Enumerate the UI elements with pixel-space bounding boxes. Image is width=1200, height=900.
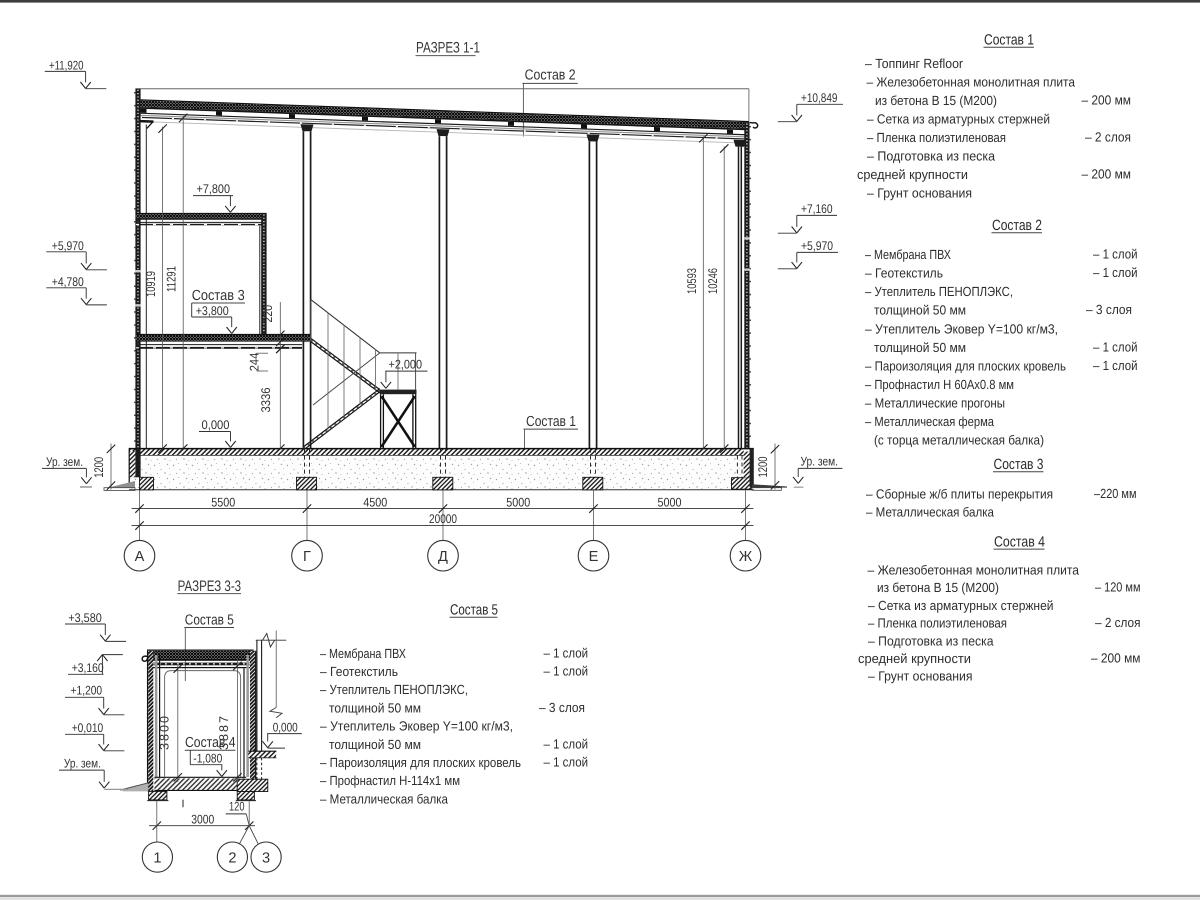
svg-text:– Геотекстиль: – Геотекстиль [320, 664, 398, 679]
svg-text:– 1 слой: – 1 слой [544, 664, 589, 679]
svg-text:– Металлические прогоны: – Металлические прогоны [865, 395, 1005, 410]
svg-text:– Металлическая ферма: – Металлическая ферма [865, 414, 995, 429]
svg-text:– Пленка полиэтиленовая: – Пленка полиэтиленовая [868, 616, 1007, 631]
svg-text:10919: 10919 [144, 271, 158, 297]
svg-text:Состав 3: Состав 3 [192, 288, 245, 304]
svg-text:+4,780: +4,780 [52, 275, 84, 289]
svg-text:10593: 10593 [685, 268, 699, 294]
svg-text:–220 мм: –220 мм [1094, 486, 1137, 501]
svg-text:– 3 слоя: – 3 слоя [539, 700, 585, 715]
svg-text:– 1 слой: – 1 слой [1093, 358, 1138, 373]
svg-text:– Утеплитель Эковер Y=100 кг/м: – Утеплитель Эковер Y=100 кг/м3, [865, 321, 1058, 336]
svg-text:– Сборные ж/б плиты перекрытия: – Сборные ж/б плиты перекрытия [866, 486, 1053, 501]
svg-text:– 200 мм: – 200 мм [1082, 166, 1132, 181]
svg-text:Ж: Ж [739, 549, 753, 565]
svg-text:– 2 слоя: – 2 слоя [1085, 129, 1131, 144]
svg-text:из бетона В 15 (М200): из бетона В 15 (М200) [875, 93, 997, 108]
svg-text:3336: 3336 [259, 388, 273, 413]
svg-text:толщиной 50 мм: толщиной 50 мм [874, 303, 966, 318]
svg-text:+7,160: +7,160 [801, 202, 833, 216]
svg-text:+2,000: +2,000 [389, 358, 423, 372]
svg-text:из бетона В 15 (М200): из бетона В 15 (М200) [877, 580, 999, 595]
svg-text:Состав 4: Состав 4 [994, 534, 1045, 550]
svg-text:Состав 3: Состав 3 [994, 457, 1044, 473]
svg-text:20000: 20000 [429, 512, 457, 526]
svg-text:10246: 10246 [706, 268, 720, 294]
svg-text:5000: 5000 [658, 496, 682, 510]
svg-text:5500: 5500 [211, 496, 235, 510]
svg-text:Состав 2: Состав 2 [992, 218, 1042, 234]
svg-text:3: 3 [262, 850, 270, 866]
svg-text:– Железобетонная монолитная п: – Железобетонная монолитная плита [868, 563, 1080, 578]
svg-text:– 1 слой: – 1 слой [544, 645, 589, 660]
svg-text:+3,580: +3,580 [68, 611, 102, 625]
svg-text:средней крупности: средней крупности [857, 167, 968, 182]
svg-text:– 3 слоя: – 3 слоя [1086, 302, 1132, 317]
svg-text:– Металлическая балка: – Металлическая балка [866, 505, 995, 520]
svg-text:5000: 5000 [506, 496, 530, 510]
svg-text:1200: 1200 [92, 457, 106, 478]
svg-text:– Пароизоляция для плоских кро: – Пароизоляция для плоских кровель [320, 755, 521, 770]
svg-text:+0,010: +0,010 [72, 721, 104, 735]
svg-text:– Подготовка из песка: – Подготовка из песка [868, 633, 994, 648]
svg-text:Состав 2: Состав 2 [525, 68, 576, 84]
svg-text:– Сетка из арматурных стержней: – Сетка из арматурных стержней [867, 111, 1050, 126]
svg-text:– 200 мм: – 200 мм [1091, 651, 1141, 666]
svg-text:+3,800: +3,800 [196, 304, 229, 318]
svg-text:– 200 мм: – 200 мм [1082, 92, 1132, 107]
svg-text:– 1 слой: – 1 слой [1093, 265, 1138, 280]
svg-text:4500: 4500 [363, 496, 387, 510]
svg-text:– Сетка из арматурных стержней: – Сетка из арматурных стержней [868, 598, 1054, 613]
svg-text:2: 2 [228, 850, 236, 866]
svg-text:+1,200: +1,200 [71, 683, 103, 697]
svg-text:– Профнастил Н-114х1 мм: – Профнастил Н-114х1 мм [320, 773, 460, 788]
svg-text:-1,080: -1,080 [193, 751, 222, 765]
svg-text:– 2 слоя: – 2 слоя [1095, 615, 1141, 630]
svg-text:– 1 слой: – 1 слой [1093, 339, 1138, 354]
svg-text:А: А [135, 549, 145, 565]
svg-text:– Топпинг Refloor: – Топпинг Refloor [865, 56, 964, 71]
svg-text:РАЗРЕЗ 3-3: РАЗРЕЗ 3-3 [178, 578, 242, 595]
svg-text:средней крупности: средней крупности [858, 651, 971, 666]
svg-text:– Мембрана ПВХ: – Мембрана ПВХ [320, 646, 406, 661]
svg-text:– Профнастил Н 60Ах0.8 мм: – Профнастил Н 60Ах0.8 мм [865, 377, 1014, 392]
svg-text:0,000: 0,000 [273, 720, 298, 734]
svg-text:Ур. зем.: Ур. зем. [46, 455, 83, 469]
svg-text:– Утеплитель Эковер Y=100 кг/м: – Утеплитель Эковер Y=100 кг/м3, [320, 719, 513, 734]
svg-text:Е: Е [589, 549, 599, 565]
svg-text:– Геотекстиль: – Геотекстиль [865, 266, 943, 281]
svg-text:Состав 1: Состав 1 [526, 414, 576, 430]
svg-text:– Пароизоляция для плоских кро: – Пароизоляция для плоских кровель [865, 358, 1066, 373]
svg-text:(с торца металлическая балка): (с торца металлическая балка) [874, 432, 1044, 447]
svg-text:Г: Г [303, 549, 311, 565]
svg-text:РАЗРЕЗ 1-1: РАЗРЕЗ 1-1 [416, 39, 480, 56]
svg-text:Д: Д [438, 549, 448, 565]
svg-text:120: 120 [229, 799, 245, 813]
svg-text:3800: 3800 [157, 716, 171, 750]
svg-text:– Грунт основания: – Грунт основания [867, 185, 972, 200]
svg-text:– Утеплитель ПЕНОПЛЭКС,: – Утеплитель ПЕНОПЛЭКС, [865, 284, 1013, 299]
svg-text:+7,800: +7,800 [197, 182, 231, 196]
svg-text:– Пленка полиэтиленовая: – Пленка полиэтиленовая [867, 130, 1006, 145]
svg-text:+11,920: +11,920 [49, 59, 84, 73]
svg-text:– Железобетонная монолитная п: – Железобетонная монолитная плита [867, 74, 1076, 89]
svg-text:0,000: 0,000 [202, 418, 230, 432]
svg-text:244: 244 [247, 353, 261, 372]
svg-text:+5,970: +5,970 [52, 239, 84, 253]
svg-text:Ур. зем.: Ур. зем. [801, 454, 839, 468]
svg-text:– Металлическая балка: – Металлическая балка [320, 791, 449, 806]
svg-text:– Мембрана ПВХ: – Мембрана ПВХ [865, 247, 951, 262]
svg-text:Состав 5: Состав 5 [450, 602, 498, 618]
svg-text:Состав 5: Состав 5 [185, 612, 234, 628]
svg-text:1200: 1200 [756, 457, 770, 478]
svg-text:3000: 3000 [191, 812, 214, 826]
svg-text:– Подготовка из песка: – Подготовка из песка [867, 148, 996, 163]
svg-text:+5,970: +5,970 [801, 239, 833, 253]
svg-text:Состав 1: Состав 1 [984, 33, 1034, 49]
svg-text:+10,849: +10,849 [801, 91, 838, 105]
svg-text:– 1 слой: – 1 слой [544, 755, 589, 770]
svg-text:11291: 11291 [165, 266, 179, 292]
svg-text:толщиной 50 мм: толщиной 50 мм [329, 700, 421, 715]
svg-text:– 1 слой: – 1 слой [1093, 247, 1138, 262]
svg-text:толщиной 50 мм: толщиной 50 мм [874, 340, 966, 355]
svg-text:– 120 мм: – 120 мм [1095, 580, 1141, 595]
svg-text:Ур. зем.: Ур. зем. [64, 756, 101, 770]
svg-text:– Утеплитель ПЕНОПЛЭКС,: – Утеплитель ПЕНОПЛЭКС, [320, 682, 468, 697]
svg-text:Состав 4: Состав 4 [185, 735, 236, 751]
svg-text:– 1 слой: – 1 слой [544, 736, 589, 751]
svg-text:толщиной 50 мм: толщиной 50 мм [329, 737, 421, 752]
svg-text:– Грунт основания: – Грунт основания [868, 669, 973, 684]
svg-text:+3,160: +3,160 [72, 661, 104, 675]
svg-text:220: 220 [261, 305, 275, 323]
svg-text:1: 1 [153, 850, 161, 866]
